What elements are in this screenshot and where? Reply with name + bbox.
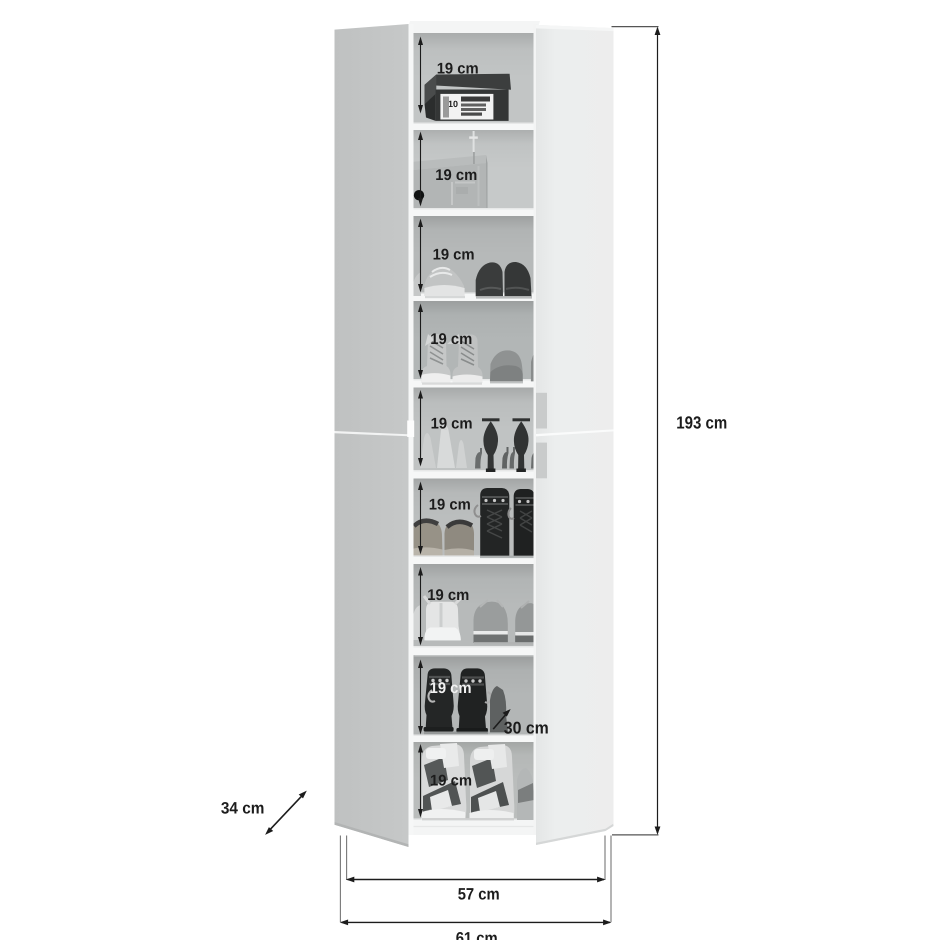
svg-text:19 cm: 19 cm <box>430 773 472 790</box>
svg-text:10: 10 <box>448 99 458 109</box>
svg-text:61 cm: 61 cm <box>456 929 498 940</box>
svg-text:19 cm: 19 cm <box>433 247 475 264</box>
svg-text:19 cm: 19 cm <box>427 587 469 604</box>
svg-text:30 cm: 30 cm <box>504 719 549 738</box>
svg-text:19 cm: 19 cm <box>437 61 479 78</box>
svg-text:19 cm: 19 cm <box>429 496 471 513</box>
svg-text:19 cm: 19 cm <box>435 167 477 184</box>
svg-text:57 cm: 57 cm <box>458 886 500 904</box>
svg-text:19 cm: 19 cm <box>430 680 472 697</box>
svg-text:193 cm: 193 cm <box>676 413 727 433</box>
svg-text:34 cm: 34 cm <box>221 800 265 818</box>
svg-text:19 cm: 19 cm <box>431 416 473 433</box>
svg-text:19 cm: 19 cm <box>430 331 472 348</box>
